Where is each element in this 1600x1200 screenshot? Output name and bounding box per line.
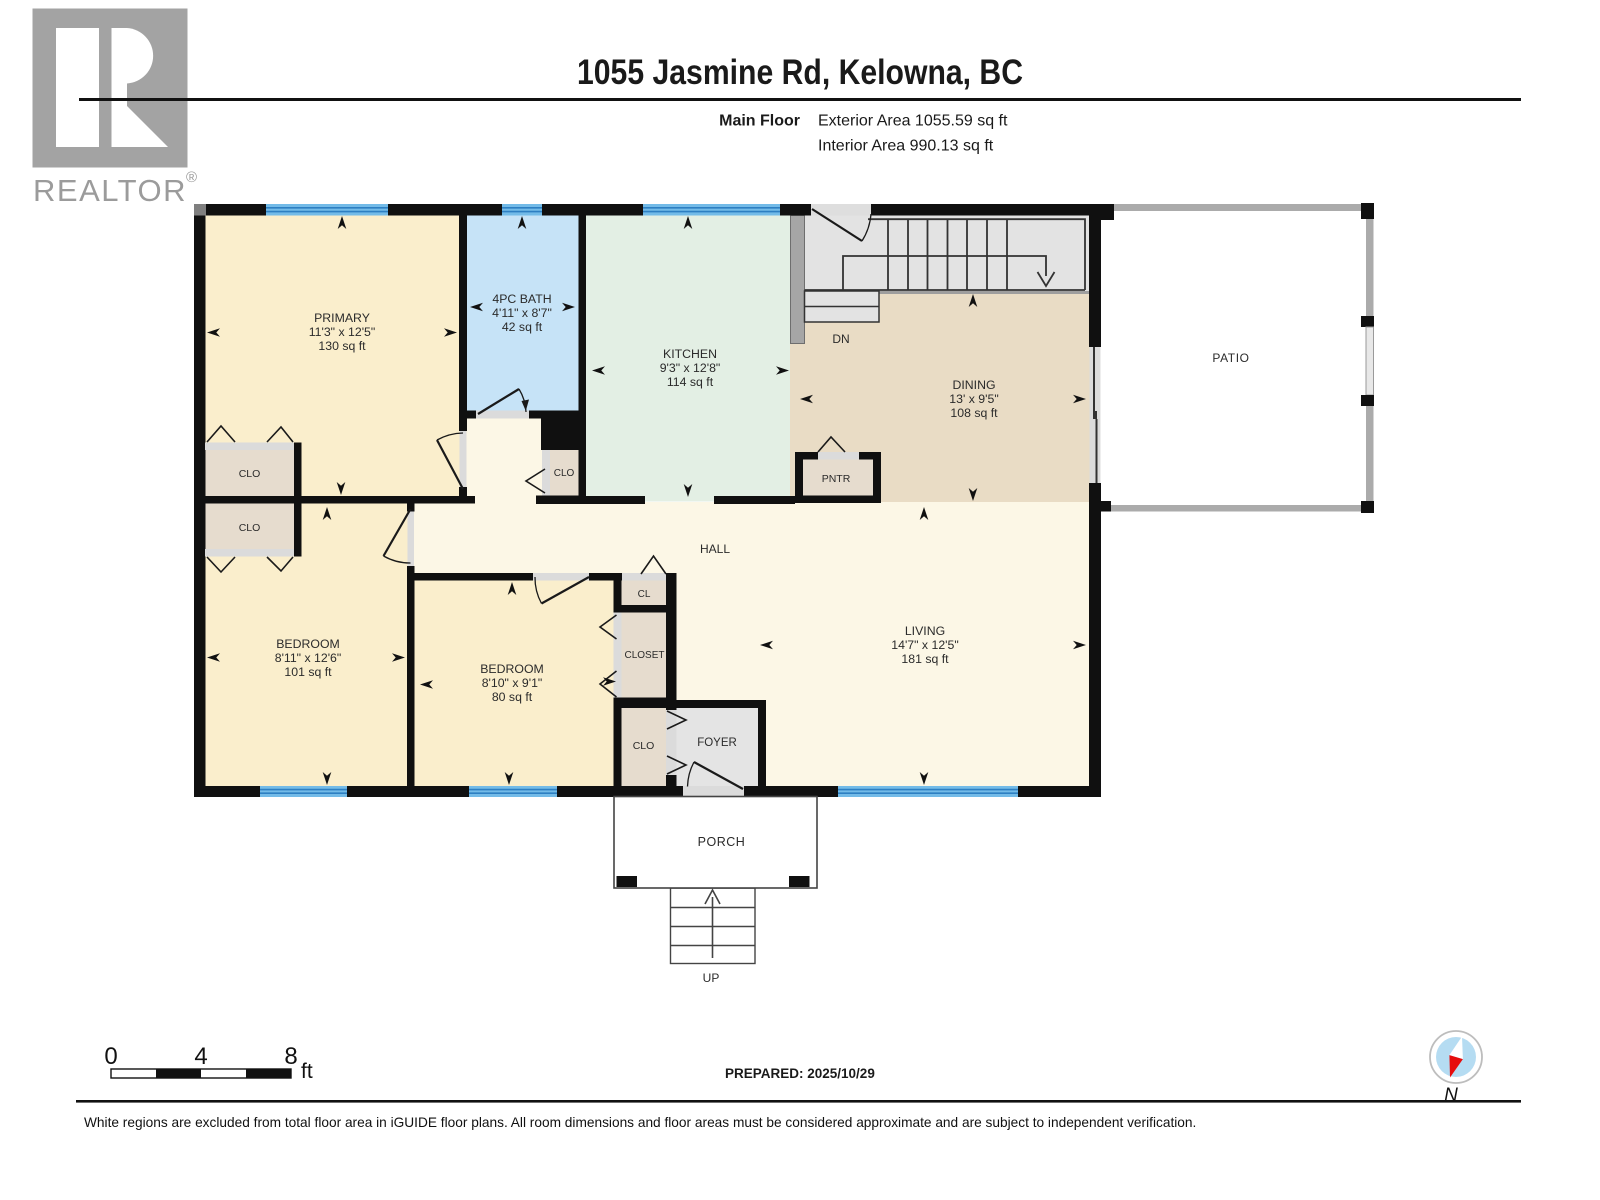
svg-text:CLO: CLO xyxy=(239,468,261,480)
svg-text:PORCH: PORCH xyxy=(698,835,746,849)
svg-text:LIVING: LIVING xyxy=(905,624,945,638)
svg-text:80 sq ft: 80 sq ft xyxy=(492,690,533,704)
svg-text:ft: ft xyxy=(301,1060,313,1083)
svg-text:HALL: HALL xyxy=(700,542,730,556)
svg-text:108 sq ft: 108 sq ft xyxy=(950,406,998,420)
svg-text:14'7" x 12'5": 14'7" x 12'5" xyxy=(891,638,958,652)
svg-text:8'10" x 9'1": 8'10" x 9'1" xyxy=(482,676,543,690)
svg-text:PNTR: PNTR xyxy=(822,473,851,485)
svg-text:101 sq ft: 101 sq ft xyxy=(284,665,332,679)
svg-text:CLOSET: CLOSET xyxy=(624,650,664,661)
svg-text:BEDROOM: BEDROOM xyxy=(480,662,544,676)
svg-text:CL: CL xyxy=(638,589,651,600)
svg-text:42 sq ft: 42 sq ft xyxy=(502,320,543,334)
svg-text:Interior Area 990.13 sq ft: Interior Area 990.13 sq ft xyxy=(818,138,994,155)
svg-text:REALTOR: REALTOR xyxy=(33,173,187,208)
svg-text:4'11" x 8'7": 4'11" x 8'7" xyxy=(492,306,552,320)
svg-text:0: 0 xyxy=(104,1043,117,1070)
svg-text:8: 8 xyxy=(284,1043,297,1070)
svg-text:CLO: CLO xyxy=(554,468,575,479)
svg-text:FOYER: FOYER xyxy=(697,737,737,749)
svg-text:181 sq ft: 181 sq ft xyxy=(901,652,949,666)
svg-text:CLO: CLO xyxy=(239,522,261,534)
svg-text:®: ® xyxy=(186,169,197,186)
svg-text:13' x 9'5": 13' x 9'5" xyxy=(949,392,998,406)
svg-text:PRIMARY: PRIMARY xyxy=(314,311,370,325)
svg-text:KITCHEN: KITCHEN xyxy=(663,347,717,361)
svg-text:UP: UP xyxy=(703,971,720,985)
svg-text:DINING: DINING xyxy=(952,378,995,392)
svg-text:BEDROOM: BEDROOM xyxy=(276,637,340,651)
svg-text:4PC BATH: 4PC BATH xyxy=(492,292,551,306)
svg-text:114 sq ft: 114 sq ft xyxy=(667,375,714,389)
svg-text:N: N xyxy=(1444,1085,1458,1106)
svg-text:8'11" x 12'6": 8'11" x 12'6" xyxy=(275,651,342,665)
svg-text:PREPARED: 2025/10/29: PREPARED: 2025/10/29 xyxy=(725,1066,875,1081)
svg-text:Exterior Area 1055.59 sq ft: Exterior Area 1055.59 sq ft xyxy=(818,113,1008,130)
svg-text:CLO: CLO xyxy=(633,740,655,752)
svg-text:Main Floor: Main Floor xyxy=(719,113,800,130)
svg-text:White regions are excluded fro: White regions are excluded from total fl… xyxy=(84,1115,1196,1130)
svg-text:11'3" x 12'5": 11'3" x 12'5" xyxy=(309,325,376,339)
svg-text:9'3" x 12'8": 9'3" x 12'8" xyxy=(660,361,721,375)
svg-text:1055 Jasmine Rd, Kelowna, BC: 1055 Jasmine Rd, Kelowna, BC xyxy=(577,53,1023,92)
svg-text:PATIO: PATIO xyxy=(1212,351,1249,365)
svg-text:4: 4 xyxy=(194,1043,207,1070)
svg-text:DN: DN xyxy=(832,332,849,346)
svg-text:130 sq ft: 130 sq ft xyxy=(318,339,366,353)
